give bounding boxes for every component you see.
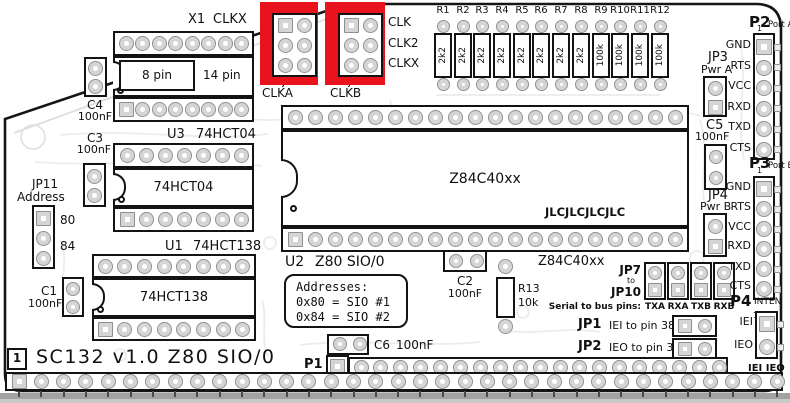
- pad: [391, 374, 406, 389]
- pad: [98, 259, 113, 274]
- c2-value-label: 100nF: [443, 288, 487, 300]
- pad: [353, 337, 367, 351]
- resistor-r6: R6 2k2: [531, 6, 551, 94]
- pad: [408, 232, 423, 247]
- pin-stub: [774, 105, 781, 112]
- p3-pin1-label: 1: [757, 167, 762, 175]
- pad: [498, 319, 513, 334]
- resistor-r5: R5 2k2: [512, 6, 532, 94]
- pin-tick: [709, 391, 711, 397]
- u3-ref-label: U3: [167, 128, 185, 142]
- p2-pin-label-cts: CTS: [711, 142, 751, 154]
- pad: [168, 374, 183, 389]
- pad: [135, 102, 150, 117]
- pad: [234, 36, 249, 51]
- pad: [87, 169, 102, 184]
- resistor-r10: R10 100k: [610, 6, 630, 94]
- pad: [437, 20, 450, 33]
- pin-stub: [777, 344, 784, 351]
- serial-col-txb: TXB: [690, 303, 712, 312]
- pad: [756, 39, 772, 55]
- pad: [87, 188, 102, 203]
- pad: [36, 251, 51, 266]
- x1-ref-label: X1: [188, 13, 205, 27]
- pad: [408, 110, 423, 125]
- pad: [66, 300, 80, 314]
- pad: [185, 102, 200, 117]
- pad: [234, 102, 249, 117]
- pad: [516, 20, 529, 33]
- pad: [468, 232, 483, 247]
- p1-ref-label: P1: [304, 358, 323, 372]
- pad: [235, 322, 250, 337]
- u1-body: 74HCT138: [92, 278, 256, 317]
- pad: [476, 20, 489, 33]
- pad: [488, 232, 503, 247]
- pad: [368, 110, 383, 125]
- resistor-r9: R9 100k: [591, 6, 611, 94]
- pad: [648, 110, 663, 125]
- pin-tick: [442, 391, 444, 397]
- c1-capacitor: [62, 277, 84, 317]
- pad: [756, 241, 772, 257]
- c2-ref-label: C2: [443, 275, 487, 288]
- pad: [588, 232, 603, 247]
- pin-tick: [509, 391, 511, 397]
- u3-part-label: 74HCT04: [196, 128, 256, 142]
- x1-signal-label: CLKX: [213, 13, 247, 27]
- u3-body: 74HCT04: [113, 168, 254, 207]
- pin-tick: [464, 391, 466, 397]
- pad: [654, 20, 667, 33]
- pad: [301, 374, 316, 389]
- pin-tick: [598, 391, 600, 397]
- pad: [502, 374, 517, 389]
- pad: [257, 374, 272, 389]
- pin-tick: [286, 391, 288, 397]
- pad: [288, 110, 303, 125]
- pin-tick: [620, 391, 622, 397]
- pad: [671, 266, 685, 280]
- pad: [508, 232, 523, 247]
- c4-value-label: 100nF: [75, 111, 115, 123]
- pad: [119, 36, 134, 51]
- pad: [36, 231, 51, 246]
- pin-tick: [419, 391, 421, 397]
- pad: [176, 322, 191, 337]
- pad: [759, 316, 775, 332]
- pin-stub: [774, 85, 781, 92]
- serial-col-txa: TXA: [644, 303, 666, 312]
- pad: [678, 319, 692, 333]
- pad: [101, 374, 116, 389]
- serial-note-label: Serial to bus pins:: [548, 303, 641, 312]
- u2-part-right-label: Z84C40xx: [538, 255, 604, 269]
- pad: [634, 20, 647, 33]
- pin-tick: [375, 391, 377, 397]
- pad: [168, 102, 183, 117]
- pad: [66, 282, 80, 296]
- p3-pin-label-cts: CTS: [711, 280, 751, 292]
- pin-tick: [553, 391, 555, 397]
- pad: [628, 232, 643, 247]
- pad: [634, 78, 647, 91]
- pad: [36, 211, 51, 226]
- pad: [437, 78, 450, 91]
- pin-stub: [774, 266, 781, 273]
- pad: [139, 148, 154, 163]
- p3-pin-label-rxd: RXD: [711, 240, 751, 252]
- pin-tick: [263, 391, 265, 397]
- pad: [548, 232, 563, 247]
- pad: [756, 281, 772, 297]
- pad: [770, 374, 785, 389]
- pad: [648, 266, 662, 280]
- jp11-ref-label: JP11: [32, 178, 58, 191]
- pad: [215, 212, 230, 227]
- p2-header: [753, 33, 775, 160]
- pad: [448, 232, 463, 247]
- x1-body: 8 pin 14 pin: [113, 56, 254, 97]
- pad: [435, 374, 450, 389]
- pad: [535, 20, 548, 33]
- pin-stub: [774, 286, 781, 293]
- jp1-jumper: [672, 315, 717, 337]
- pad: [654, 78, 667, 91]
- pad: [498, 259, 513, 274]
- pad: [725, 374, 740, 389]
- jp11-name-label: Address: [17, 191, 65, 204]
- pad: [480, 374, 495, 389]
- c6-ref-label: C6: [374, 339, 390, 352]
- pad: [368, 374, 383, 389]
- p2-pin-label-gnd: GND: [711, 39, 751, 51]
- jp2-desc-label: IEO to pin 39: [609, 342, 680, 354]
- pin-tick: [107, 391, 109, 397]
- pad: [135, 36, 150, 51]
- pad: [363, 38, 378, 53]
- pad: [648, 232, 663, 247]
- pin-tick: [219, 391, 221, 397]
- x1-14pin-label: 14 pin: [203, 69, 241, 82]
- pad: [177, 212, 192, 227]
- pad: [328, 232, 343, 247]
- pad: [158, 212, 173, 227]
- c2-capacitor: [443, 250, 487, 272]
- pin-tick: [130, 391, 132, 397]
- pin-stub: [774, 64, 781, 71]
- jp11-option-80: 80: [60, 214, 75, 227]
- pad: [747, 374, 762, 389]
- pad: [218, 36, 233, 51]
- corner-marker-text: 1: [9, 352, 25, 365]
- pin-tick: [241, 391, 243, 397]
- pad: [34, 374, 49, 389]
- pad: [756, 80, 772, 96]
- pad: [177, 148, 192, 163]
- pin-tick: [642, 391, 644, 397]
- pin-tick: [665, 391, 667, 397]
- pin-stub: [774, 226, 781, 233]
- pin-tick: [40, 391, 42, 397]
- p4-name-label: INTEN: [754, 298, 781, 307]
- pad: [279, 374, 294, 389]
- pad: [328, 110, 343, 125]
- pin-stub: [774, 44, 781, 51]
- u2-pin1-dot: [290, 205, 297, 212]
- pad: [614, 78, 627, 91]
- pad: [428, 110, 443, 125]
- pad: [658, 374, 673, 389]
- r13-body: [496, 277, 515, 318]
- addresses-line1: 0x80 = SIO #1: [296, 296, 390, 309]
- pin-stub: [774, 246, 781, 253]
- pad: [137, 322, 152, 337]
- p4-pin-label-ieo: IEO: [729, 339, 753, 351]
- pad: [145, 374, 160, 389]
- pin-stub: [774, 146, 781, 153]
- pin-tick: [397, 391, 399, 397]
- clkb-label: CLKB: [330, 87, 361, 100]
- pad: [449, 254, 463, 268]
- pcb-screenshot: X1 CLKX 8 pin 14 pin C4 100nF U3 74HCT04…: [0, 0, 790, 403]
- u3-socket-bottom-row: [113, 207, 254, 232]
- pad: [88, 61, 103, 76]
- addresses-heading: Addresses:: [296, 281, 368, 294]
- pad: [703, 374, 718, 389]
- pad: [348, 232, 363, 247]
- pin-tick: [486, 391, 488, 397]
- jp9-jumper: [690, 262, 712, 300]
- pin-tick: [531, 391, 533, 397]
- x1-8pin-label: 8 pin: [121, 69, 193, 82]
- pad: [508, 110, 523, 125]
- pin-tick: [18, 391, 20, 397]
- pad: [698, 319, 712, 333]
- pad: [756, 201, 772, 217]
- pad: [555, 78, 568, 91]
- jp8-jumper: [667, 262, 689, 300]
- pad: [196, 148, 211, 163]
- u1-part-label: 74HCT138: [193, 240, 261, 254]
- pin-tick: [63, 391, 65, 397]
- pad: [324, 374, 339, 389]
- pad: [528, 110, 543, 125]
- clka-label: CLKA: [262, 87, 293, 100]
- pad: [591, 374, 606, 389]
- pad: [234, 212, 249, 227]
- c3-value-label: 100nF: [74, 144, 114, 156]
- p4-ref-label: P4: [730, 294, 751, 310]
- pad: [190, 374, 205, 389]
- pad: [176, 259, 191, 274]
- p3-pin-label-txd: TXD: [711, 261, 751, 273]
- bus-header-row: [5, 372, 783, 391]
- pad: [235, 374, 250, 389]
- pad: [201, 102, 216, 117]
- pad: [694, 266, 708, 280]
- pin-tick: [353, 391, 355, 397]
- pad: [588, 110, 603, 125]
- pad: [201, 36, 216, 51]
- pin-tick: [776, 391, 778, 397]
- pad: [476, 78, 489, 91]
- pad: [98, 322, 113, 337]
- pin-stub: [777, 321, 784, 328]
- u3-chip-text: 74HCT04: [115, 181, 252, 195]
- u1-pin1-dot: [97, 306, 104, 313]
- p3-pin-label-rts: RTS: [711, 201, 751, 213]
- clk-pin-label-1: CLK2: [388, 37, 419, 50]
- clkb-jumper-block[interactable]: [338, 13, 383, 77]
- p2-pin-label-vcc: VCC: [711, 80, 751, 92]
- p4-pin-label-iei: IEI: [729, 316, 753, 328]
- pad: [196, 322, 211, 337]
- pad: [88, 79, 103, 94]
- pad: [117, 259, 132, 274]
- addresses-note-box: Addresses: 0x80 = SIO #1 0x84 = SIO #2: [284, 274, 408, 328]
- resistor-r11: R11 100k: [630, 6, 650, 94]
- pad: [470, 254, 484, 268]
- c1-ref-label: C1: [41, 285, 57, 298]
- resistor-r2: R2 2k2: [453, 6, 473, 94]
- pad: [575, 20, 588, 33]
- pad: [458, 374, 473, 389]
- c6-value-label: 100nF: [396, 339, 433, 352]
- p4-header: [755, 311, 778, 359]
- pad: [575, 78, 588, 91]
- pad: [363, 58, 378, 73]
- pin-stub: [774, 186, 781, 193]
- pad: [297, 38, 312, 53]
- u2-ref-label: U2: [285, 255, 304, 270]
- pad: [235, 259, 250, 274]
- u1-chip-text: 74HCT138: [94, 291, 254, 305]
- pad: [569, 374, 584, 389]
- c5-value-label: 100nF: [695, 131, 729, 143]
- u3-pin1-dot: [118, 196, 125, 203]
- x1-8pin-box: 8 pin: [119, 60, 195, 91]
- jp1-ref-label: JP1: [578, 318, 601, 332]
- u2-chip-text: Z84C40xx: [283, 172, 687, 187]
- clk-pin-label-0: CLK: [388, 16, 411, 29]
- pad: [56, 374, 71, 389]
- pad: [608, 110, 623, 125]
- pad: [614, 374, 629, 389]
- pad: [548, 110, 563, 125]
- pad: [120, 148, 135, 163]
- corner-marker-box: 1: [7, 348, 27, 370]
- x1-socket-top-row: [113, 31, 254, 56]
- r13-ref-label: R13: [518, 283, 540, 295]
- pin-tick: [308, 391, 310, 397]
- pad: [157, 259, 172, 274]
- p2-name-label: Port A: [768, 21, 790, 30]
- jp7-label: JP7: [610, 264, 641, 277]
- clka-jumper-block[interactable]: [272, 13, 317, 77]
- jp2-ref-label: JP2: [578, 340, 601, 354]
- c4-capacitor: [84, 57, 107, 97]
- pad: [388, 110, 403, 125]
- pad: [496, 20, 509, 33]
- pad: [152, 36, 167, 51]
- pad: [388, 232, 403, 247]
- pad: [348, 110, 363, 125]
- jp10-label: JP10: [604, 286, 641, 299]
- pad: [346, 374, 361, 389]
- pad: [308, 232, 323, 247]
- pad: [756, 181, 772, 197]
- pad: [756, 101, 772, 117]
- pad: [648, 283, 662, 297]
- pad: [595, 20, 608, 33]
- serial-col-rxa: RXA: [667, 303, 689, 312]
- jp11-option-84: 84: [60, 240, 75, 253]
- u2-body: Z84C40xx JLCJLCJLCJLC: [281, 130, 689, 227]
- pad: [595, 78, 608, 91]
- c1-value-label: 100nF: [28, 298, 62, 310]
- pad: [196, 259, 211, 274]
- addresses-line2: 0x84 = SIO #2: [296, 311, 390, 324]
- pad: [608, 232, 623, 247]
- pin-tick: [85, 391, 87, 397]
- c6-capacitor: [327, 334, 369, 355]
- x1-socket-bottom-row: [113, 97, 254, 122]
- pad: [568, 232, 583, 247]
- pad: [448, 110, 463, 125]
- pad: [681, 374, 696, 389]
- pad: [216, 322, 231, 337]
- pin-stub: [774, 126, 781, 133]
- pad: [555, 20, 568, 33]
- pad: [698, 342, 712, 356]
- pad: [137, 259, 152, 274]
- jp1-desc-label: IEI to pin 38: [609, 320, 675, 332]
- pad: [516, 78, 529, 91]
- p3-pin-label-gnd: GND: [711, 181, 751, 193]
- pad: [185, 36, 200, 51]
- pad: [568, 110, 583, 125]
- pin-tick: [152, 391, 154, 397]
- pad: [157, 322, 172, 337]
- pad: [297, 58, 312, 73]
- pad: [678, 342, 692, 356]
- pad: [528, 232, 543, 247]
- u2-socket-bottom-row: [281, 227, 689, 252]
- pin-tick: [174, 391, 176, 397]
- fab-logo-text: JLCJLCJLCJLC: [545, 206, 625, 218]
- u1-socket-top-row: [92, 254, 256, 278]
- pad: [628, 110, 643, 125]
- p3-pin-label-vcc: VCC: [711, 221, 751, 233]
- pad: [671, 283, 685, 297]
- pad: [288, 232, 303, 247]
- u2-part-label: Z80 SIO/0: [315, 255, 385, 270]
- u2-socket-top-row: [281, 105, 689, 130]
- pad: [12, 374, 27, 389]
- resistor-r3: R3 2k2: [472, 6, 492, 94]
- pad: [117, 322, 132, 337]
- jp7-jumper: [644, 262, 666, 300]
- p2-pin-label-rts: RTS: [711, 60, 751, 72]
- pad: [614, 20, 627, 33]
- pad: [123, 374, 138, 389]
- pad: [668, 232, 683, 247]
- p3-header: [753, 176, 775, 300]
- pad: [308, 110, 323, 125]
- pin-tick: [196, 391, 198, 397]
- pad: [196, 212, 211, 227]
